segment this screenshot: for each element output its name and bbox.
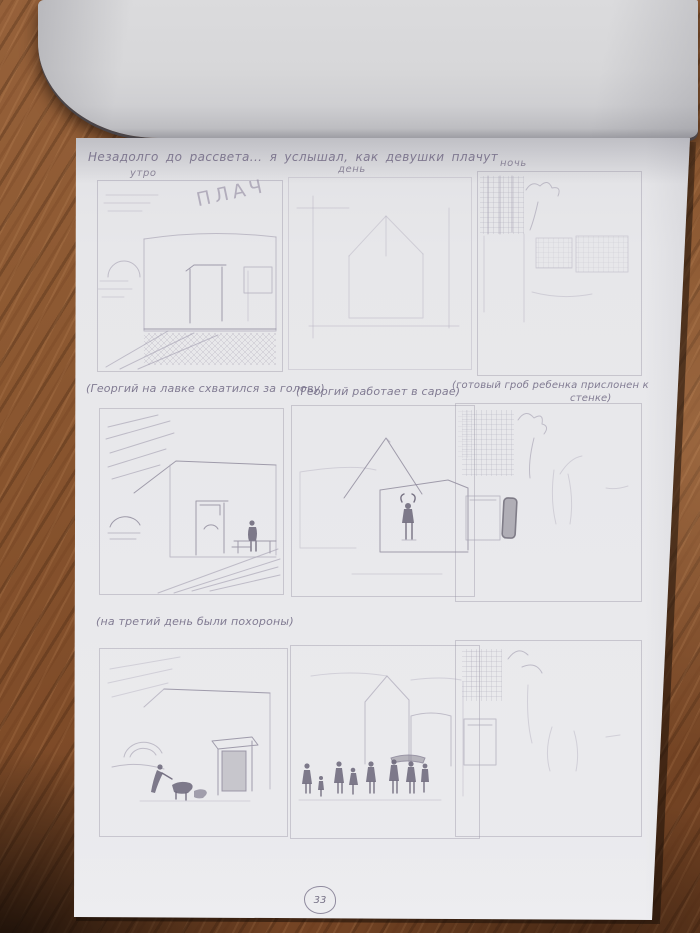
caption-funeral-day: (на третий день были похороны)	[96, 615, 294, 628]
storyboard-panel-7-yard	[99, 648, 288, 837]
funeral-procession-sketch	[291, 646, 479, 838]
sketchbook-photo: Незадолго до рассвета... я услышал, как …	[0, 0, 700, 933]
woman-with-animals-sketch	[100, 649, 287, 836]
georgy-in-barn-sketch	[292, 406, 474, 596]
panel-label-day: день	[338, 164, 366, 175]
caption-georgy-bench: (Георгий на лавке схватился за голову)	[86, 382, 325, 395]
night-yard-sketch	[478, 172, 641, 375]
story-premise-caption: Незадолго до рассвета... я услышал, как …	[88, 150, 498, 164]
sketchbook-page: Незадолго до рассвета... я услышал, как …	[0, 138, 700, 933]
day-house-sketch	[289, 178, 471, 369]
storyboard-panel-2-day	[288, 177, 472, 370]
storyboard-panel-9-yard-night	[455, 640, 642, 837]
caption-coffin-wall-line1: (готовый гроб ребенка прислонен к	[452, 380, 649, 391]
storyboard-panel-1-morning	[97, 180, 283, 372]
storyboard-panel-8-procession	[290, 645, 480, 839]
caption-georgy-barn: (Георгий работает в сарае)	[296, 385, 460, 398]
georgy-on-bench-sketch	[100, 409, 283, 594]
storyboard-panel-6-coffin	[455, 403, 642, 602]
panel-label-night: ночь	[500, 158, 527, 169]
page-number: 33	[314, 895, 327, 906]
dark-window-trees-sketch	[456, 641, 641, 836]
flipped-previous-sheet	[38, 0, 698, 138]
storyboard-panel-4-bench	[99, 408, 284, 595]
morning-house-sketch	[98, 181, 282, 371]
storyboard-panel-5-barn	[291, 405, 475, 597]
panel-label-morning: утро	[130, 168, 157, 179]
storyboard-panel-3-night	[477, 171, 642, 376]
coffin-by-wall-sketch	[456, 404, 641, 601]
page-number-circle: 33	[304, 886, 336, 914]
